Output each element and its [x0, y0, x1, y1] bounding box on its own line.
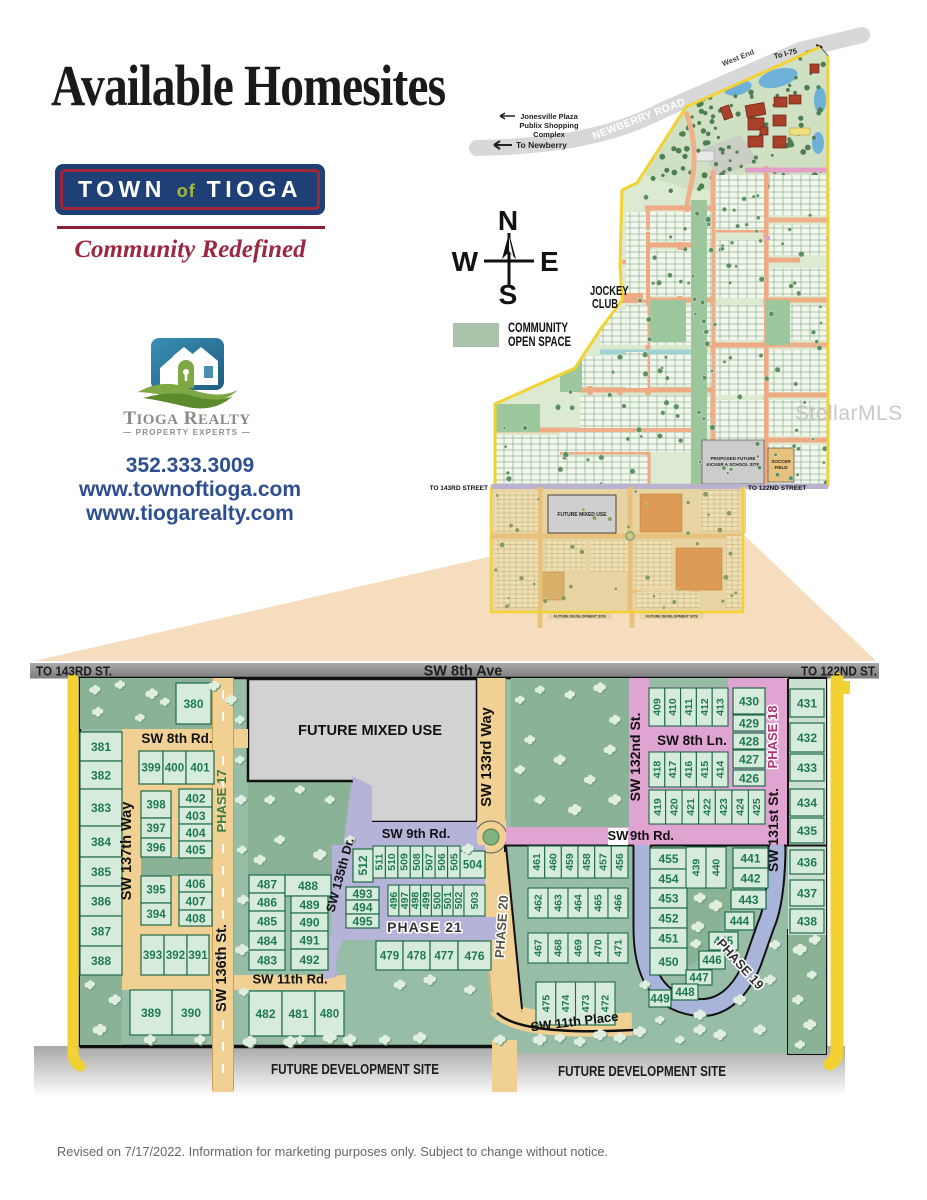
svg-text:FUTURE DEVELOPMENT SITE: FUTURE DEVELOPMENT SITE [271, 1062, 439, 1078]
svg-text:397: 397 [146, 823, 165, 835]
svg-text:403: 403 [185, 809, 205, 823]
svg-text:PHASE 17: PHASE 17 [214, 770, 229, 833]
svg-text:475: 475 [540, 995, 552, 1013]
svg-text:Complex: Complex [533, 130, 566, 139]
svg-text:427: 427 [739, 752, 759, 766]
svg-text:476: 476 [464, 949, 484, 963]
svg-text:389: 389 [141, 1006, 161, 1020]
svg-text:473: 473 [580, 995, 592, 1013]
svg-text:SW 132nd St.: SW 132nd St. [627, 713, 643, 802]
svg-text:432: 432 [797, 731, 817, 745]
svg-text:422: 422 [702, 798, 714, 816]
svg-text:407: 407 [185, 894, 205, 908]
svg-text:416: 416 [683, 761, 695, 779]
svg-text:TO 122ND ST.: TO 122ND ST. [801, 665, 877, 679]
svg-text:SOCCER: SOCCER [771, 459, 791, 464]
svg-text:439: 439 [691, 859, 703, 877]
svg-text:396: 396 [146, 843, 165, 855]
svg-text:401: 401 [190, 763, 210, 775]
svg-text:471: 471 [613, 939, 625, 957]
svg-text:TO 143RD ST.: TO 143RD ST. [36, 665, 112, 679]
svg-text:419: 419 [652, 798, 664, 816]
svg-text:456: 456 [614, 853, 626, 871]
svg-text:FIELD: FIELD [775, 465, 789, 470]
svg-text:SW: SW [608, 828, 630, 843]
svg-text:400: 400 [165, 763, 184, 775]
svg-text:474: 474 [560, 995, 572, 1013]
svg-text:483: 483 [257, 953, 277, 967]
svg-text:436: 436 [797, 855, 817, 869]
svg-text:FUTURE DEVELOPMENT SITE: FUTURE DEVELOPMENT SITE [554, 615, 607, 619]
svg-text:447: 447 [689, 973, 708, 985]
svg-text:505: 505 [448, 853, 460, 871]
svg-text:385: 385 [91, 865, 111, 879]
svg-text:S: S [499, 279, 518, 310]
svg-text:450: 450 [658, 955, 678, 969]
svg-text:381: 381 [91, 740, 111, 754]
svg-text:480: 480 [320, 1009, 339, 1021]
svg-text:464: 464 [573, 894, 585, 912]
svg-text:425: 425 [751, 798, 763, 816]
svg-text:489: 489 [299, 898, 319, 912]
svg-text:402: 402 [185, 791, 205, 805]
svg-text:391: 391 [188, 950, 208, 962]
svg-text:430: 430 [739, 694, 759, 708]
svg-text:394: 394 [146, 909, 166, 921]
svg-text:466: 466 [613, 894, 625, 912]
svg-text:458: 458 [581, 853, 593, 871]
svg-text:FUTURE MIXED USE: FUTURE MIXED USE [298, 722, 442, 739]
svg-text:410: 410 [667, 698, 679, 716]
svg-text:SW 8th Ave: SW 8th Ave [424, 664, 503, 680]
svg-text:433: 433 [797, 761, 817, 775]
svg-text:428: 428 [739, 734, 759, 748]
svg-text:484: 484 [257, 934, 277, 948]
svg-text:508: 508 [411, 853, 423, 871]
svg-text:509: 509 [399, 853, 411, 871]
svg-text:SW 137th Way: SW 137th Way [119, 802, 135, 901]
svg-text:479: 479 [380, 951, 399, 963]
svg-text:405: 405 [185, 843, 205, 857]
svg-text:387: 387 [91, 924, 111, 938]
svg-text:414: 414 [715, 761, 727, 779]
svg-text:426: 426 [739, 771, 759, 785]
svg-text:494: 494 [352, 900, 372, 914]
svg-text:502: 502 [453, 892, 465, 910]
svg-text:412: 412 [699, 698, 711, 716]
svg-text:380: 380 [183, 697, 203, 711]
svg-text:423: 423 [718, 798, 730, 816]
svg-text:388: 388 [91, 954, 111, 968]
svg-text:404: 404 [185, 826, 205, 840]
svg-text:9th Rd.: 9th Rd. [630, 828, 674, 843]
svg-text:460: 460 [548, 853, 560, 871]
svg-text:398: 398 [146, 800, 166, 812]
svg-text:SW 8th Rd.: SW 8th Rd. [141, 731, 212, 746]
svg-text:482: 482 [255, 1007, 275, 1021]
svg-text:SW 11th Rd.: SW 11th Rd. [252, 972, 327, 987]
svg-text:481: 481 [288, 1007, 308, 1021]
svg-text:PHASE 18: PHASE 18 [765, 706, 780, 769]
svg-text:SW 133rd Way: SW 133rd Way [479, 707, 495, 806]
svg-text:424: 424 [735, 798, 747, 816]
svg-text:382: 382 [91, 768, 111, 782]
svg-text:429: 429 [739, 716, 759, 730]
svg-text:490: 490 [299, 915, 319, 929]
svg-text:390: 390 [181, 1006, 201, 1020]
svg-text:449: 449 [650, 994, 669, 1006]
svg-text:467: 467 [533, 939, 545, 957]
svg-text:PROPOSED FUTURE: PROPOSED FUTURE [710, 456, 755, 461]
svg-text:486: 486 [257, 895, 277, 909]
svg-text:454: 454 [658, 872, 678, 886]
svg-text:459: 459 [564, 853, 576, 871]
svg-text:444: 444 [730, 916, 750, 928]
svg-text:N: N [498, 205, 518, 236]
svg-text:To Newberry: To Newberry [516, 140, 567, 150]
svg-text:487: 487 [257, 877, 277, 891]
svg-text:448: 448 [675, 987, 695, 999]
svg-text:TIOGA REALTY: TIOGA REALTY [123, 408, 251, 429]
svg-text:399: 399 [141, 763, 160, 775]
svg-text:KICKER A SCHOOL SITE: KICKER A SCHOOL SITE [706, 462, 759, 467]
svg-text:492: 492 [299, 953, 319, 967]
svg-text:446: 446 [702, 955, 721, 967]
svg-text:441: 441 [740, 851, 760, 865]
svg-text:510: 510 [386, 853, 398, 871]
svg-text:485: 485 [257, 914, 277, 928]
svg-text:Publix Shopping: Publix Shopping [519, 121, 579, 130]
svg-text:W: W [452, 246, 479, 277]
svg-text:409: 409 [651, 698, 663, 716]
svg-text:Jonesville Plaza: Jonesville Plaza [520, 112, 578, 121]
svg-text:TO 122ND STREET: TO 122ND STREET [748, 485, 806, 492]
svg-text:434: 434 [797, 796, 817, 810]
svg-text:512: 512 [356, 855, 370, 875]
svg-text:463: 463 [553, 894, 565, 912]
svg-text:420: 420 [668, 798, 680, 816]
svg-text:477: 477 [434, 951, 453, 963]
svg-text:491: 491 [299, 933, 319, 947]
svg-text:411: 411 [683, 698, 695, 715]
svg-text:437: 437 [797, 886, 817, 900]
svg-text:495: 495 [352, 914, 372, 928]
svg-text:— PROPERTY EXPERTS —: — PROPERTY EXPERTS — [123, 428, 251, 437]
svg-text:453: 453 [658, 891, 678, 905]
svg-text:504: 504 [463, 860, 483, 872]
svg-text:SW 8th Ln.: SW 8th Ln. [657, 733, 727, 748]
svg-text:442: 442 [740, 871, 760, 885]
svg-text:493: 493 [352, 887, 372, 901]
svg-text:393: 393 [143, 950, 162, 962]
svg-text:468: 468 [553, 939, 565, 957]
svg-text:462: 462 [533, 894, 545, 912]
svg-text:417: 417 [667, 761, 679, 779]
svg-text:406: 406 [185, 877, 205, 891]
svg-text:418: 418 [651, 761, 663, 779]
svg-text:FUTURE MIXED USE: FUTURE MIXED USE [557, 512, 607, 518]
svg-text:FUTURE DEVELOPMENT SITE: FUTURE DEVELOPMENT SITE [646, 615, 699, 619]
svg-text:503: 503 [469, 892, 481, 910]
svg-text:SW 131st St.: SW 131st St. [765, 788, 781, 872]
svg-text:PHASE 21: PHASE 21 [387, 919, 463, 935]
svg-text:SW 9th Rd.: SW 9th Rd. [382, 826, 451, 841]
svg-text:SW 136th St.: SW 136th St. [214, 924, 230, 1012]
svg-text:511: 511 [374, 853, 386, 870]
svg-text:461: 461 [531, 853, 543, 871]
svg-text:384: 384 [91, 835, 111, 849]
svg-text:E: E [540, 246, 559, 277]
svg-text:507: 507 [423, 853, 435, 871]
svg-text:443: 443 [738, 893, 758, 907]
svg-text:451: 451 [658, 931, 678, 945]
svg-text:TO 143RD STREET: TO 143RD STREET [430, 485, 488, 492]
svg-text:457: 457 [598, 853, 610, 871]
svg-text:392: 392 [166, 950, 185, 962]
svg-text:435: 435 [797, 824, 817, 838]
svg-text:413: 413 [715, 698, 727, 716]
svg-text:452: 452 [658, 911, 678, 925]
svg-text:431: 431 [797, 696, 817, 710]
svg-text:415: 415 [699, 761, 711, 779]
svg-text:469: 469 [573, 939, 585, 957]
svg-text:455: 455 [658, 852, 678, 866]
svg-text:440: 440 [711, 859, 723, 877]
svg-text:465: 465 [593, 894, 605, 912]
svg-text:478: 478 [407, 951, 427, 963]
svg-text:506: 506 [436, 853, 448, 871]
svg-text:386: 386 [91, 894, 111, 908]
svg-text:FUTURE DEVELOPMENT SITE: FUTURE DEVELOPMENT SITE [558, 1064, 726, 1080]
svg-text:438: 438 [797, 914, 817, 928]
svg-text:470: 470 [593, 939, 605, 957]
svg-text:383: 383 [91, 801, 111, 815]
svg-text:395: 395 [146, 885, 166, 897]
svg-text:408: 408 [185, 911, 205, 925]
svg-text:421: 421 [685, 798, 697, 816]
svg-text:488: 488 [298, 879, 318, 893]
